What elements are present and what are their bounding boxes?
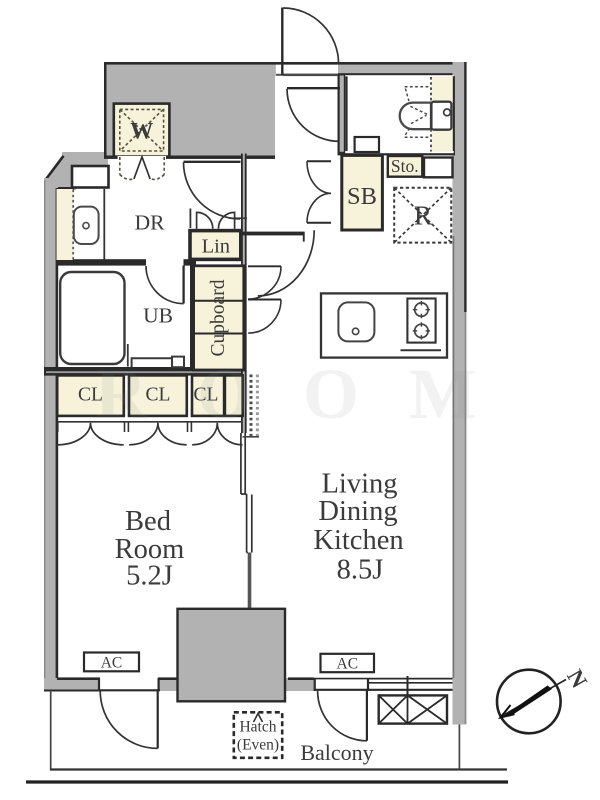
svg-text:SB: SB (347, 183, 377, 210)
svg-text:Lin: Lin (202, 236, 230, 258)
svg-text:R: R (414, 201, 432, 231)
svg-text:Hatch: Hatch (239, 719, 276, 736)
svg-text:Cupboard: Cupboard (208, 279, 229, 356)
svg-text:5.2J: 5.2J (126, 561, 173, 592)
svg-text:Dining: Dining (318, 496, 397, 527)
svg-text:Sto.: Sto. (391, 156, 419, 176)
svg-text:ROOM: ROOM (95, 354, 527, 434)
svg-text:AC: AC (337, 656, 359, 673)
svg-text:8.5J: 8.5J (337, 555, 384, 586)
svg-text:(Even): (Even) (237, 737, 279, 754)
svg-text:Bed: Bed (125, 506, 171, 537)
svg-text:DR: DR (135, 211, 166, 235)
svg-text:Living: Living (322, 469, 398, 500)
svg-text:Kitchen: Kitchen (313, 525, 403, 556)
svg-text:Balcony: Balcony (300, 740, 373, 765)
svg-text:UB: UB (143, 304, 173, 328)
svg-text:W: W (130, 119, 153, 144)
svg-text:AC: AC (101, 655, 123, 672)
